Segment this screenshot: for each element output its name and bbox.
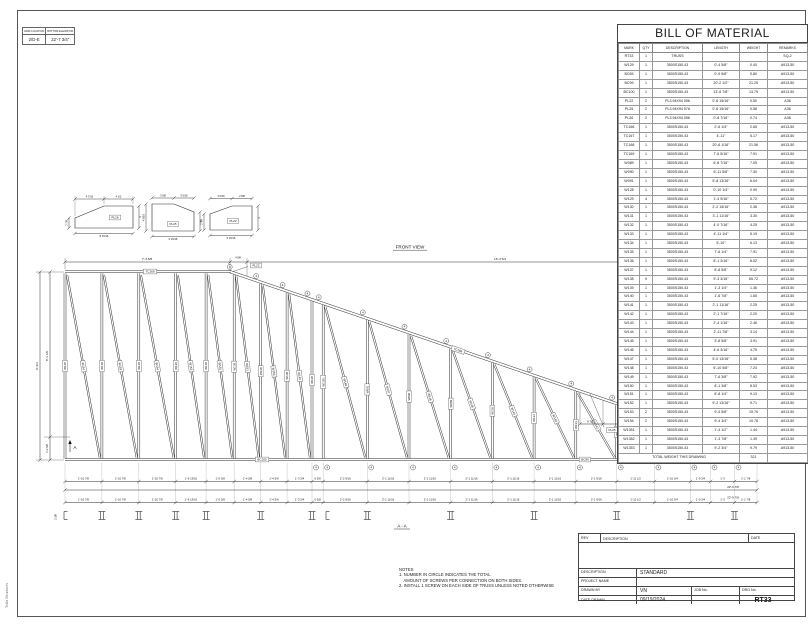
member-label-text: BC99 — [581, 458, 589, 462]
bom-cell: 65.72 — [740, 275, 768, 284]
bom-cell: A913-50 — [768, 266, 808, 275]
dim-text: 1'-4 5/8 — [243, 497, 253, 501]
bom-cell: 7.91 — [740, 150, 768, 159]
member-label: W151 — [244, 361, 250, 373]
bom-cell: A913-50 — [768, 159, 808, 168]
dim-text: 2'-1 11/16 — [424, 497, 437, 501]
bom-cell: 4'-6 3/16" — [703, 346, 740, 355]
bom-cell: W134 — [619, 240, 640, 249]
bom-cell: 1 — [640, 124, 653, 133]
bom-cell: A913-50 — [768, 373, 808, 382]
bom-cell: 1 — [640, 382, 653, 391]
bom-cell: 8'-1 3/16" — [703, 257, 740, 266]
project-name-row: PROJECT NAME — [579, 578, 794, 587]
dim-text: 2'-1 11/16 — [382, 476, 395, 480]
member-label: W144 — [509, 405, 518, 417]
bom-cell: 1.39 — [740, 435, 768, 444]
bom-cell: 1 — [640, 168, 653, 177]
dim-text: 6 15/16 — [169, 237, 178, 241]
member-label-text: PL25 — [169, 222, 176, 226]
bom-cell: W142 — [619, 311, 640, 320]
bom-row: W13313500S150-434'-11 1/4"5.19A913-50 — [619, 231, 808, 240]
dim-text: 3 5/16 — [180, 194, 188, 198]
bom-cell: W091 — [619, 177, 640, 186]
bom-row: W13013500S150-432'-2 15/16"2.36A913-50 — [619, 204, 808, 213]
bom-cell: 2 — [640, 409, 653, 418]
bom-cell: TC166 — [619, 124, 640, 133]
dim-text: 4 7/16 — [86, 195, 94, 199]
bom-row: W13613500S150-438'-1 3/16"8.52A913-50 — [619, 257, 808, 266]
revision-area — [579, 543, 794, 569]
bom-cell: 1 — [640, 257, 653, 266]
bom-cell: 3.14 — [740, 329, 768, 338]
bom-cell: 1 — [640, 435, 653, 444]
bom-cell: 7.05 — [740, 159, 768, 168]
member-label: W138 — [63, 360, 68, 371]
bom-cell: A913-50 — [768, 444, 808, 453]
bom-cell: 1'-4 9/16" — [703, 195, 740, 204]
bom-cell: 2'-6 1/4" — [703, 124, 740, 133]
bom-cell: W1352 — [619, 435, 640, 444]
bom-cell: A36 — [768, 97, 808, 106]
member-label: W143 — [550, 412, 559, 424]
bom-cell: A913-50 — [768, 150, 808, 159]
bom-cell: W154 — [619, 418, 640, 427]
bom-cell: 0.58 — [740, 106, 768, 115]
bom-cell: A913-50 — [768, 70, 808, 79]
dim-text: 1'-4 5/8 — [269, 476, 279, 480]
bom-cell: 3500S150-43 — [653, 373, 703, 382]
dim-text: 1'-11 1/2 — [630, 476, 641, 480]
bom-cell: 1 — [640, 320, 653, 329]
member-label: W153 — [117, 360, 124, 372]
member-label: W138 — [258, 366, 263, 377]
bom-cell: A913-50 — [768, 364, 808, 373]
dim-text: 8 7/16 — [587, 419, 595, 423]
bom-header-row: MARKQTYDESCRIPTIONLENGTHWEIGHTREMARKS — [619, 44, 808, 53]
plate-detail-shape — [210, 206, 252, 230]
dim-text: 2'-2 9/16 — [340, 476, 351, 480]
section-marker: A — [73, 445, 77, 450]
bom-cell: 3.30 — [740, 213, 768, 222]
bom-cell: PL3.94X94 578 — [653, 106, 703, 115]
bom-cell: 1'-3 1/4" — [703, 284, 740, 293]
drg-no-value: RT33 — [740, 596, 786, 604]
bom-cell: 1.65 — [740, 293, 768, 302]
bom-cell: 3500S150-43 — [653, 124, 703, 133]
bom-row: W13713500S150-438'-8 5/8"9.12A913-50 — [619, 266, 808, 275]
dim-text: 2 5/8 — [239, 194, 245, 198]
bom-cell: 3500S150-43 — [653, 409, 703, 418]
description-label: DESCRIPTION — [579, 569, 637, 577]
bom-row: W12943500S150-431'-4 9/16"5.72A913-50 — [619, 195, 808, 204]
bom-cell: PL26 — [619, 115, 640, 124]
bom-cell: 9'-2 3/4" — [703, 444, 740, 453]
dim-text: 2'-1 9/16 — [591, 476, 602, 480]
dim-text: 1'-4 5/8 — [243, 476, 253, 480]
bom-row: W08913500S150-436'-8 7/16"7.05A913-50 — [619, 159, 808, 168]
bom-cell: 0.74 — [740, 115, 768, 124]
member-label: W149 — [296, 370, 302, 382]
bom-cell: 9'-4 5/8" — [703, 409, 740, 418]
dim-text: 1'-3 3/4 — [295, 476, 305, 480]
bom-cell: 0.80 — [740, 70, 768, 79]
member-label: W1351 — [321, 375, 326, 388]
bom-cell: 3500S150-43 — [653, 338, 703, 347]
bom-row: W13913500S150-431'-3 1/4"1.36A913-50 — [619, 284, 808, 293]
drg-no-label: DRG No. — [740, 587, 786, 595]
bom-cell: W129 — [619, 195, 640, 204]
bom-cell: 9'-3 3/16" — [703, 275, 740, 284]
bom-cell: 6'-8 7/16" — [703, 159, 740, 168]
bom-title: BILL OF MATERIAL — [618, 25, 807, 43]
dim-text: 4 1/2 — [116, 195, 122, 199]
bom-cell: 1 — [640, 88, 653, 97]
bom-cell: 3500S150-43 — [653, 364, 703, 373]
bottom-elevation-header: BOTTOM ELEVATION — [46, 28, 75, 35]
member-label-text: W138 — [63, 362, 67, 370]
bom-cell: 2.65 — [740, 124, 768, 133]
drawing-line — [233, 267, 248, 272]
bom-cell: 3500S150-43 — [653, 177, 703, 186]
dim-text: 8'-1 1/8 — [45, 351, 49, 361]
bom-cell: 5.38 — [740, 355, 768, 364]
member-label-text: PL25 — [608, 428, 615, 432]
bom-row: W13413500S150-435'-10"6.13A913-50 — [619, 240, 808, 249]
bom-cell: W149 — [619, 373, 640, 382]
member-label: W145 — [467, 398, 475, 410]
bom-cell: 1 — [640, 79, 653, 88]
bom-cell: W150 — [619, 382, 640, 391]
bom-header-cell: DESCRIPTION — [653, 44, 703, 53]
bom-cell: TRUSS — [653, 53, 703, 62]
bom-cell: TC169 — [619, 150, 640, 159]
dim-text: 7'-3 5/8 — [142, 257, 153, 261]
project-name-label: PROJECT NAME — [579, 578, 637, 586]
dim-text: 1'-0 3/4 — [696, 476, 706, 480]
bom-cell: 3500S150-43 — [653, 435, 703, 444]
bom-cell: 2'-1 11/16" — [703, 302, 740, 311]
bom-row: W09013500S150-436'-11 5/8"7.30A913-50 — [619, 168, 808, 177]
dim-text: 1'-6 13/16 — [185, 476, 198, 480]
bom-cell: 3500S150-43 — [653, 222, 703, 231]
member-label: W135 — [490, 405, 495, 416]
dim-text: 2'-1 11/16 — [549, 497, 562, 501]
bom-row: W12913500S150-430'-4 5/8"0.40A913-50 — [619, 61, 808, 70]
member-label: W134 — [532, 412, 537, 423]
bom-cell: BC100 — [619, 88, 640, 97]
member-label: PL22 — [227, 219, 238, 224]
bom-cell: 6'-10 5/8" — [703, 364, 740, 373]
bom-cell: 1 — [640, 142, 653, 151]
member-label-text: W135 — [491, 407, 495, 415]
bom-cell: 3500S150-43 — [653, 88, 703, 97]
member-label: W133 — [573, 419, 578, 430]
dim-text: 2 7/8 — [65, 220, 68, 226]
bom-cell: 1 — [640, 427, 653, 436]
bom-cell: 20'-2 1/2" — [703, 79, 740, 88]
bom-cell: A913-50 — [768, 275, 808, 284]
dim-text: 1'-4 5/8 — [269, 497, 279, 501]
bom-cell: RT33 — [619, 53, 640, 62]
bom-cell: A913-50 — [768, 293, 808, 302]
bom-cell: 3500S150-43 — [653, 275, 703, 284]
bom-cell: 2 — [640, 106, 653, 115]
member-label: W150 — [271, 366, 277, 378]
bom-cell: 3500S150-43 — [653, 133, 703, 142]
dim-text: 22'-9 7/8 — [727, 485, 739, 489]
bom-row: W09113500S150-435'-8 13/16"6.04A913-50 — [619, 177, 808, 186]
bom-row: W14713500S150-435'-0 13/16"5.38A913-50 — [619, 355, 808, 364]
bom-cell: 2.46 — [740, 320, 768, 329]
bom-cell: 3500S150-43 — [653, 311, 703, 320]
bom-cell: 3500S150-43 — [653, 329, 703, 338]
member-label: W138 — [100, 360, 105, 371]
bom-cell: 3500S150-43 — [653, 195, 703, 204]
bom-cell: 2.20 — [740, 311, 768, 320]
bom-cell: A913-50 — [768, 435, 808, 444]
plate-detail-shape — [152, 204, 194, 231]
member-label: W153 — [188, 360, 194, 372]
bom-cell: 3500S150-43 — [653, 186, 703, 195]
bom-cell: 7'-6 1/4" — [703, 248, 740, 257]
member-label-text: W138 — [232, 362, 236, 370]
dim-text: 4 5/16 — [142, 213, 145, 221]
member-label: PL25 — [167, 222, 178, 227]
member-label-text: W138 — [137, 362, 141, 370]
bom-cell: PL22 — [619, 97, 640, 106]
member-label: W146 — [426, 391, 434, 403]
bom-cell: 2 — [640, 97, 653, 106]
bom-cell: 3500S150-43 — [653, 159, 703, 168]
bom-cell: 9.12 — [740, 266, 768, 275]
bom-cell: 1 — [640, 177, 653, 186]
bom-row: BC6513500S150-430'-9 5/8"0.80A913-50 — [619, 70, 808, 79]
bom-row: W12813500S150-430'-10 1/4"0.90A913-50 — [619, 186, 808, 195]
bom-cell: 1 — [640, 311, 653, 320]
bom-cell: A913-50 — [768, 186, 808, 195]
bom-cell: 3500S150-43 — [653, 213, 703, 222]
bom-cell: 5.19 — [740, 231, 768, 240]
dim-text: 6 15/16 — [227, 236, 236, 240]
bom-cell: 13.75 — [740, 88, 768, 97]
bom-cell: 9.79 — [740, 444, 768, 453]
bom-cell: W132 — [619, 222, 640, 231]
bom-header-cell: QTY — [640, 44, 653, 53]
bom-cell: 21.25 — [740, 79, 768, 88]
bom-cell: 0.40 — [740, 61, 768, 70]
bom-cell: 8'-8 1/4" — [703, 391, 740, 400]
bom-cell: 3500S150-43 — [653, 142, 703, 151]
dim-text: 16'-3 3/4 — [494, 257, 506, 261]
bom-cell: 8'-8 5/8" — [703, 266, 740, 275]
member-label: PL26 — [109, 215, 120, 220]
bom-row: PL222PL3.94X94 0560'-6 15/16"0.50A36 — [619, 97, 808, 106]
bom-cell: A913-50 — [768, 320, 808, 329]
bom-cell: W090 — [619, 168, 640, 177]
dim-text: 1'-10 3/4 — [667, 497, 678, 501]
bom-row: W14413500S150-432'-11 7/8"3.14A913-50 — [619, 329, 808, 338]
bom-cell: 9 — [640, 275, 653, 284]
bom-cell: A913-50 — [768, 177, 808, 186]
bom-cell: W128 — [619, 186, 640, 195]
member-label: W138 — [173, 360, 178, 371]
bom-cell: 2 — [640, 115, 653, 124]
bom-header-cell: LENGTH — [703, 44, 740, 53]
member-label-text: W089 — [449, 399, 453, 407]
bom-cell: 3500S150-43 — [653, 204, 703, 213]
bom-cell: 20'-6 1/16" — [703, 142, 740, 151]
bom-row: W13113500S150-433'-1 11/16"3.30A913-50 — [619, 213, 808, 222]
dim-text: 2'-1 11/16 — [424, 476, 437, 480]
bom-header-cell: WEIGHT — [740, 44, 768, 53]
bom-cell: 3500S150-43 — [653, 150, 703, 159]
member-label: W089 — [448, 398, 453, 409]
bom-cell: 9'-2 13/16" — [703, 400, 740, 409]
bom-cell: TC167 — [619, 133, 640, 142]
bom-cell: 3500S150-43 — [653, 248, 703, 257]
member-label-text: PL26 — [111, 216, 118, 220]
description-value: STANDARD — [637, 569, 794, 577]
bom-cell: 2'-4 1/16" — [703, 320, 740, 329]
bom-cell: 2'-2 15/16" — [703, 204, 740, 213]
dim-text: 1'-3 3/4 — [295, 497, 305, 501]
bom-cell: 0'-6 15/16" — [703, 97, 740, 106]
bom-cell: A913-50 — [768, 124, 808, 133]
note-line: 2. INSTALL 1 SCREW ON EACH SIDE OF TRUSS… — [399, 583, 554, 588]
bom-cell: 1 — [640, 133, 653, 142]
bom-cell: 8.53 — [740, 382, 768, 391]
bom-cell: 1'-4 1/2" — [703, 427, 740, 436]
dim-text: 6 5/8 — [314, 497, 321, 501]
bom-cell: 3.91 — [740, 338, 768, 347]
bom-cell: 1.36 — [740, 284, 768, 293]
bom-cell: 1 — [640, 70, 653, 79]
bom-cell: A913-50 — [768, 231, 808, 240]
bom-cell: 3500S150-43 — [653, 61, 703, 70]
bom-cell: 1 — [640, 400, 653, 409]
notes-block: NOTES 1. NUMBER IN CIRCLE INDICATES THE … — [399, 567, 554, 589]
dim-text: 1'-10 3/4 — [667, 476, 678, 480]
bom-cell: 3500S150-43 — [653, 79, 703, 88]
bom-cell: 0'-4 5/8" — [703, 61, 740, 70]
bom-cell: 1 — [640, 266, 653, 275]
dim-text: 4 — [258, 217, 261, 219]
bom-cell: 0.90 — [740, 186, 768, 195]
member-label: W138 — [285, 370, 290, 381]
bom-cell: 1 — [640, 373, 653, 382]
bom-cell: W146 — [619, 346, 640, 355]
bom-cell: A36 — [768, 115, 808, 124]
bom-cell: BC99 — [619, 79, 640, 88]
dim-text: 6 5/8 — [314, 476, 321, 480]
bom-row: TC16813500S150-4320'-6 1/16"21.56A913-50 — [619, 142, 808, 151]
bom-cell: A913-50 — [768, 427, 808, 436]
drawn-by-label: DRAWN BY — [579, 587, 637, 595]
dim-text: 2'-1 9/16 — [591, 497, 602, 501]
dim-text: 2'-1 11/16 — [382, 497, 395, 501]
member-label-text: TC169 — [145, 270, 154, 274]
bom-cell: A913-50 — [768, 168, 808, 177]
bom-cell: 0'-8 7/16" — [703, 115, 740, 124]
bom-cell: W138 — [619, 275, 640, 284]
section-label: A - A — [397, 524, 406, 529]
bom-cell: 6'-11 5/8" — [703, 168, 740, 177]
bom-cell: 4 — [640, 195, 653, 204]
bom-cell: 1 — [640, 240, 653, 249]
bom-cell: A913-50 — [768, 391, 808, 400]
job-no-value — [692, 596, 740, 604]
member-label-text: W090 — [407, 392, 411, 400]
bom-cell: 3500S150-43 — [653, 231, 703, 240]
member-label-text: W133 — [574, 421, 578, 429]
dim-text: 1'-10 7/8 — [115, 476, 126, 480]
bom-cell: W147 — [619, 355, 640, 364]
bom-cell: 0'-10 1/4" — [703, 186, 740, 195]
bom-row: BC10013500S150-4313'-6 7/8"13.75A913-50 — [619, 88, 808, 97]
dim-text: 2'-1 11/16 — [507, 497, 520, 501]
bom-cell: A913-50 — [768, 284, 808, 293]
bom-cell: W151 — [619, 391, 640, 400]
bom-cell: 2.25 — [740, 302, 768, 311]
bom-row: W15013500S150-438'-1 3/8"8.53A913-50 — [619, 382, 808, 391]
bom-row: TC16613500S150-432'-6 1/4"2.65A913-50 — [619, 124, 808, 133]
bom-row: PL252PL3.94X94 5780'-6 15/16"0.58A36 — [619, 106, 808, 115]
bom-cell: 5'-8 13/16" — [703, 177, 740, 186]
bom-cell: W153 — [619, 409, 640, 418]
bom-cell: 3500S150-43 — [653, 70, 703, 79]
project-name-value — [637, 578, 794, 586]
bom-cell: 1 — [640, 61, 653, 70]
bom-cell: 1 — [640, 150, 653, 159]
bom-row: W15323500S150-439'-4 5/8"19.76A913-50 — [619, 409, 808, 418]
dim-text: 1'-2 5/8 — [45, 444, 49, 453]
bom-cell: 1 — [640, 222, 653, 231]
bom-cell: 2 — [640, 418, 653, 427]
bom-cell: 3500S150-43 — [653, 302, 703, 311]
bom-cell: 1 — [640, 302, 653, 311]
bom-row: W135313500S150-439'-2 3/4"9.79A913-50 — [619, 444, 808, 453]
bom-cell: SQ-2 — [768, 53, 808, 62]
rev-header: REV — [579, 534, 601, 542]
bom-cell: 1 — [640, 346, 653, 355]
bom-row: W14113500S150-432'-1 11/16"2.25A913-50 — [619, 302, 808, 311]
bom-cell: W131 — [619, 213, 640, 222]
dim-text: 1'-5 3/8 — [216, 476, 226, 480]
bom-cell: 7.30 — [740, 168, 768, 177]
rev-date-header: DATE — [748, 534, 794, 542]
bom-cell: W145 — [619, 338, 640, 347]
bom-cell: 1 — [640, 213, 653, 222]
dim-text: 8'-3/4 — [35, 362, 39, 370]
bom-cell: A913-50 — [768, 79, 808, 88]
member-label-text: W138 — [174, 362, 178, 370]
bom-cell: TC168 — [619, 142, 640, 151]
member-label: PL22 — [250, 263, 261, 268]
member-label-text: BC100 — [257, 458, 267, 462]
member-label: TC169 — [143, 269, 156, 274]
bom-cell: 1 — [640, 284, 653, 293]
bom-cell: 1 — [640, 364, 653, 373]
bom-cell: 6.04 — [740, 177, 768, 186]
dim-text: 22'-9 7/8 — [727, 495, 739, 499]
front-view-label: FRONT VIEW — [396, 245, 425, 250]
drawing-sheet: W154W153W154W153W152W151W150W149W148W147… — [0, 0, 811, 625]
bom-row: W13893500S150-439'-3 3/16"65.72A913-50 — [619, 275, 808, 284]
bom-cell: 7.91 — [740, 248, 768, 257]
bom-cell: 1 — [640, 159, 653, 168]
member-label: BC99 — [579, 457, 590, 462]
